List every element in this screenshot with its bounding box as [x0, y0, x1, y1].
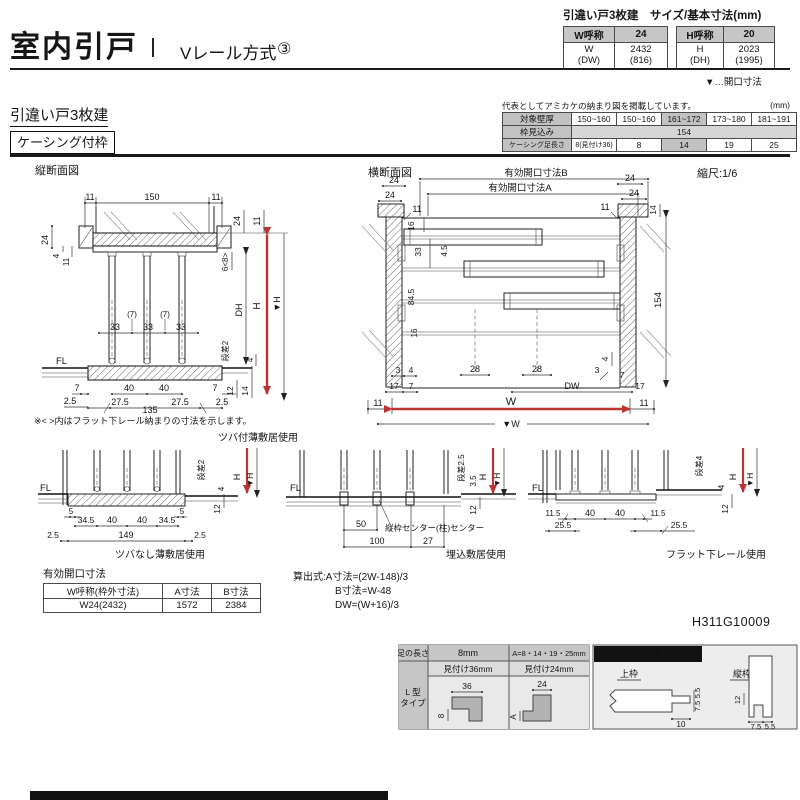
- h-dim-cell: 2023(1995): [724, 43, 775, 70]
- dim-label: 7.5: [693, 701, 702, 711]
- series-title: 引違い戸3枚建: [10, 104, 108, 127]
- dim-label: 12: [733, 696, 742, 704]
- catalog-page: 室内引戸 Vレール方式 ③ 引違い戸3枚建 サイズ/基本寸法(mm) W呼称 2…: [0, 0, 800, 800]
- dim-open-b: 有効開口寸法B: [504, 167, 567, 179]
- groove-title: 枠ケーシング溝詳細図: [606, 649, 691, 659]
- dim-label: H: [232, 474, 242, 481]
- opening-table: W呼称(枠外寸法) A寸法 B寸法 W24(2432) 1572 2384: [43, 583, 261, 613]
- dim-label-w: W: [506, 396, 517, 408]
- formula-line: 算出式:A寸法=(2W-148)/3: [293, 571, 408, 585]
- upper-frame-label: 上枠: [620, 668, 638, 679]
- method-label: Vレール方式: [180, 39, 276, 64]
- dim-label: ▼H: [492, 473, 502, 488]
- h-size-table: H呼称 20 H(DH) 2023(1995): [676, 26, 775, 70]
- dim-label: 11: [62, 257, 71, 266]
- fl-label: FL: [56, 356, 67, 367]
- dim-label-h: H: [252, 302, 263, 309]
- dim-label: ▼H: [245, 473, 255, 488]
- leg-col2-sub: 見付け24mm: [524, 664, 573, 674]
- fl-label: FL: [290, 483, 301, 494]
- dim-label: 11.5: [546, 509, 562, 518]
- wall-row2-label: 枠見込み: [503, 126, 572, 139]
- wall-cell-highlight: 14: [662, 139, 707, 152]
- dim-label: 11: [85, 192, 94, 202]
- dim-label: 4: [52, 253, 61, 258]
- page-title: 室内引戸: [10, 22, 138, 66]
- vs-note: ※< >内はフラット下レール納まりの寸法を示します。: [34, 415, 252, 426]
- opening-v2: 1572: [163, 599, 212, 613]
- wall-cell: 173~180: [707, 113, 752, 126]
- wall-cell: 19: [707, 139, 752, 152]
- w-dim-cell: 2432(816): [615, 43, 668, 70]
- opening-legend: ▼…開口寸法: [705, 74, 762, 88]
- w-val-cell: 24: [615, 27, 668, 43]
- dim-label: 16: [410, 328, 419, 337]
- dim-label: 11: [639, 398, 648, 408]
- dim-label: 4: [409, 365, 414, 375]
- dim-label: 14: [240, 386, 250, 396]
- dim-label: 25.5: [555, 520, 572, 530]
- w-size-table: W呼称 24 W(DW) 2432(816): [563, 26, 668, 70]
- dim-label: 4: [600, 356, 610, 361]
- dim-label: 25.5: [671, 520, 688, 530]
- dim-label: 4: [245, 357, 255, 362]
- detail-flat-rail: FL 段差4 4 H ▼H 12 11.5 40 40 11.5 25: [528, 448, 766, 561]
- dim-label: 27: [423, 536, 433, 546]
- leg-col1-header: 8mm: [458, 648, 478, 658]
- dim-label: 7: [212, 383, 217, 393]
- vs-dimensions: 11 150 11 24 4 11 24 11 6<8> DH H ▼H: [34, 192, 288, 426]
- dim-label: 6<8>: [221, 253, 230, 272]
- leg-type-label: L 型: [405, 687, 421, 697]
- size-tables: W呼称 24 W(DW) 2432(816) H呼称 20 H(DH) 2023…: [563, 26, 793, 70]
- dim-label-dh: DH: [234, 304, 244, 317]
- scale-label: 縮尺:1/6: [697, 165, 737, 181]
- dim-label: 150: [144, 192, 159, 202]
- opening-h1: W呼称(枠外寸法): [44, 584, 163, 599]
- opening-h3: B寸法: [212, 584, 261, 599]
- dim-label: 7: [620, 370, 625, 380]
- dim-label: ▼H: [745, 473, 755, 488]
- leg-detail-drawing: 足の長さ 8mm A=8・14・19・25mm 見付け36mm 見付け24mm …: [398, 644, 798, 734]
- wall-cell: 150~160: [572, 113, 617, 126]
- wall-table-note: 代表としてアミカケの納まり図を掲載しています。: [502, 100, 696, 112]
- formula-line: B寸法=W-48: [335, 585, 408, 599]
- dim-label: H: [478, 474, 488, 481]
- leg-table: 足の長さ 8mm A=8・14・19・25mm 見付け36mm 見付け24mm …: [398, 645, 589, 729]
- dim-label: 33: [110, 322, 120, 332]
- horizontal-section-drawing: 横断面図 有効開口寸法: [360, 160, 690, 440]
- dim-label: 2.5: [64, 396, 77, 406]
- dim-label: 10: [677, 720, 686, 729]
- vs-caption: ツバ付薄敷居使用: [218, 431, 298, 444]
- dim-label: 7: [409, 381, 414, 391]
- dim-label: H: [728, 474, 738, 481]
- sill-details-drawing: ツバ付薄敷居使用 FL 段差2 4 H ▼H 12 5 5: [30, 428, 790, 568]
- detail-caption: 埋込敷居使用: [446, 548, 506, 561]
- header-rule: [10, 68, 790, 70]
- dim-label: 40: [585, 508, 595, 518]
- wall-row3-label: ケーシング足長さ: [503, 139, 572, 152]
- opening-h2: A寸法: [163, 584, 212, 599]
- dim-label: 40: [159, 383, 169, 393]
- method-number: ③: [277, 39, 291, 59]
- dim-label: 34.5: [159, 515, 176, 525]
- h-sub-cell: H(DH): [677, 43, 724, 70]
- dim-label: 11: [373, 398, 382, 408]
- wall-table-unit: (mm): [770, 100, 790, 112]
- wall-cell: 8(見付け36): [572, 139, 617, 152]
- dim-label: 28: [470, 364, 480, 374]
- dim-label: 7: [74, 383, 79, 393]
- opening-v3: 2384: [212, 599, 261, 613]
- dim-label: DW: [565, 381, 580, 391]
- wall-thickness-table: 対象壁厚 150~160 150~160 161~172 173~180 181…: [502, 112, 797, 152]
- dim-label: 2.5: [194, 530, 206, 540]
- dim-label: 135: [142, 405, 157, 415]
- dim-label: 40: [615, 508, 625, 518]
- dim-label: 5: [180, 507, 185, 516]
- dim-label: 24: [389, 175, 399, 185]
- dim-label: 149: [118, 530, 133, 540]
- wall-row2-value: 154: [572, 126, 797, 139]
- dim-label: 16: [407, 221, 416, 230]
- wall-row1-label: 対象壁厚: [503, 113, 572, 126]
- dim-label: 17: [389, 381, 399, 391]
- formula-block: 算出式:A寸法=(2W-148)/3 B寸法=W-48 DW=(W+16)/3: [293, 571, 408, 613]
- size-table-title: 引違い戸3枚建 サイズ/基本寸法(mm): [563, 7, 793, 23]
- dim-label: 7.5: [751, 722, 761, 731]
- dim-label: 33: [143, 322, 153, 332]
- opening-table-block: 有効開口寸法 W呼称(枠外寸法) A寸法 B寸法 W24(2432) 1572 …: [43, 566, 261, 613]
- dim-label: 40: [137, 515, 147, 525]
- vertical-section-drawing: 縦断面図: [30, 160, 300, 450]
- w-sub-cell: W(DW): [564, 43, 615, 70]
- dim-label: 12: [720, 504, 730, 514]
- leg-type-label: タイプ: [400, 698, 426, 708]
- side-frame-label: 縦枠: [733, 668, 751, 679]
- dim-label: 12: [468, 505, 478, 515]
- dim-label: 14: [648, 205, 658, 215]
- dim-label: 40: [124, 383, 134, 393]
- dim-label: 84.5: [406, 288, 416, 305]
- opening-table-title: 有効開口寸法: [43, 566, 261, 581]
- detail-caption: ツバなし薄敷居使用: [115, 548, 205, 561]
- dim-label: 11: [211, 192, 220, 202]
- dim-label-h-datum: ▼H: [272, 296, 282, 311]
- drop-label: 4: [217, 486, 226, 491]
- wall-table-note-row: 代表としてアミカケの納まり図を掲載しています。 (mm): [502, 100, 790, 112]
- leg-col2-header: A=8・14・19・25mm: [512, 649, 586, 658]
- dim-label: 24: [625, 173, 635, 183]
- dim-label: 3: [396, 365, 401, 375]
- step-label: 段差2.5: [456, 454, 466, 482]
- step-label: 段差2: [196, 459, 206, 480]
- size-table-block: 引違い戸3枚建 サイズ/基本寸法(mm) W呼称 24 W(DW) 2432(8…: [563, 7, 793, 70]
- wall-cell: 25: [752, 139, 797, 152]
- wall-cell: 150~160: [617, 113, 662, 126]
- step-label: 段差4: [694, 455, 704, 476]
- profile1-left-dim: 8: [437, 713, 446, 718]
- h-val-cell: 20: [724, 27, 775, 43]
- drop-label: 3.5: [469, 475, 478, 487]
- dim-label: 24: [629, 188, 639, 198]
- opening-v1: W24(2432): [44, 599, 163, 613]
- dim-label: 24: [40, 235, 50, 245]
- page-bottom-bar: [30, 791, 388, 800]
- drop-label: 4: [717, 484, 726, 489]
- dim-open-a: 有効開口寸法A: [488, 182, 552, 194]
- dim-label: 27.5: [111, 397, 129, 407]
- doc-number: H311G10009: [692, 615, 770, 629]
- dim-label: 154: [653, 292, 664, 308]
- dim-label: 3: [595, 365, 600, 375]
- detail-caption: フラット下レール使用: [666, 548, 766, 561]
- profile2-top-dim: 24: [537, 679, 547, 689]
- center-note: 縦枠センター(柱)センター: [385, 523, 484, 533]
- dim-label: 28: [532, 364, 542, 374]
- profile2-left-dim: A: [509, 714, 518, 720]
- title-divider: [152, 38, 154, 57]
- groove-detail-box: 枠ケーシング溝詳細図 上枠 5.5 7.5 10 縦枠 12 7.5 5.5: [593, 645, 797, 731]
- w-name-cell: W呼称: [564, 27, 615, 43]
- detail-embedded-sill: FL 段差2.5 3.5 H ▼H 12 50 縦枠センター(柱)センター 10…: [286, 448, 516, 561]
- dim-label: 5: [69, 507, 74, 516]
- dim-label: 24: [232, 216, 242, 226]
- h-name-cell: H呼称: [677, 27, 724, 43]
- wall-cell-highlight: 161~172: [662, 113, 707, 126]
- dim-label: 24: [385, 190, 395, 200]
- leg-col1-sub: 見付け36mm: [443, 664, 492, 674]
- vs-title: 縦断面図: [35, 163, 79, 177]
- dim-label: 12: [212, 504, 222, 514]
- dim-label: 17: [635, 381, 645, 391]
- leg-col0-header: 足の長さ: [398, 649, 429, 658]
- formula-line: DW=(W+16)/3: [335, 599, 408, 613]
- frame-type-box: ケーシング付枠: [10, 131, 115, 154]
- dim-label: 2.5: [216, 397, 229, 407]
- fl-label: FL: [40, 483, 51, 494]
- wall-cell: 8: [617, 139, 662, 152]
- fl-label: FL: [532, 483, 543, 494]
- dim-label: 40: [107, 515, 117, 525]
- dim-label: 5.5: [765, 722, 775, 731]
- dim-label: 50: [356, 519, 366, 529]
- dim-label: (7): [160, 310, 170, 319]
- dim-label: 33: [413, 247, 423, 257]
- dim-label: 34.5: [78, 515, 95, 525]
- section-rule: [10, 154, 790, 157]
- dim-label-step: 段差2: [220, 340, 230, 361]
- dim-label: 11: [252, 216, 262, 225]
- wall-cell: 181~191: [752, 113, 797, 126]
- series-block: 引違い戸3枚建 ケーシング付枠: [10, 104, 115, 154]
- dim-label: 27.5: [171, 397, 189, 407]
- profile1-top-dim: 36: [462, 681, 472, 691]
- dim-label: 4.5: [440, 245, 449, 257]
- detail-thin-sill: FL 段差2 4 H ▼H 12 5 5 34.5 40 40 34.5: [38, 448, 257, 561]
- dim-label: 11: [412, 204, 421, 214]
- dim-label: 11: [600, 202, 609, 212]
- dim-label: 33: [176, 322, 186, 332]
- dim-label: 2.5: [47, 530, 59, 540]
- dim-label: (7): [127, 310, 137, 319]
- dim-label: 11.5: [651, 509, 667, 518]
- dim-label: 100: [369, 536, 384, 546]
